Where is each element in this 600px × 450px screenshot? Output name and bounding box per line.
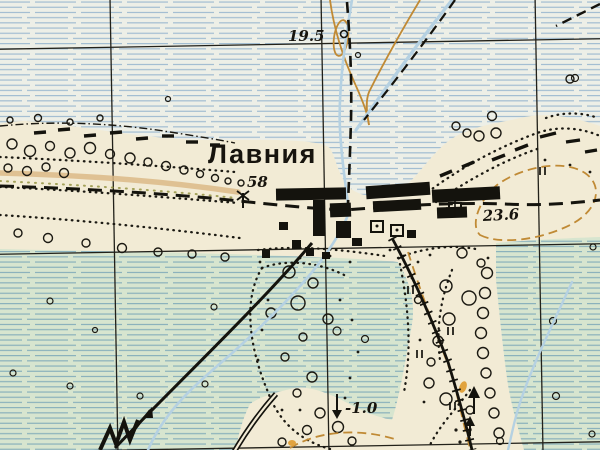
settlement-name-label: Лавния [208, 139, 317, 169]
water-level-mark: -1.0 [345, 399, 378, 417]
spot-height-23-6: 23.6 [481, 205, 520, 225]
spot-height-58: 58 [247, 173, 268, 191]
church-symbol [446, 200, 464, 217]
spot-height-19-5: 19.5 [288, 27, 325, 45]
map-canvas: Лавния 19.5 58 23.6 -1.0 [0, 0, 600, 450]
historic-topo-map[interactable]: Лавния 19.5 58 23.6 -1.0 [0, 0, 600, 450]
